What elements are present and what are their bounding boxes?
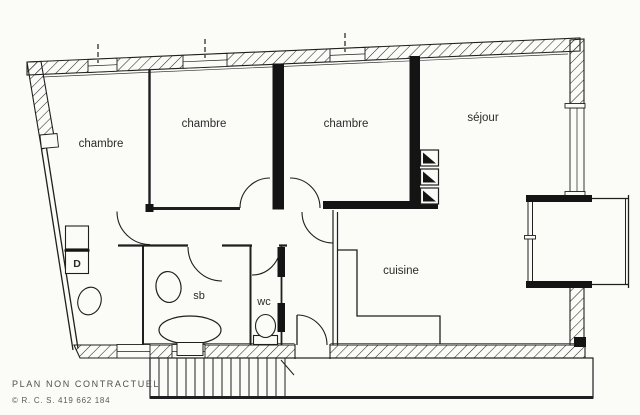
terrace (150, 358, 593, 398)
room-label-chambre-1: chambre (79, 138, 124, 150)
floor-plan-canvas: chambre chambre chambre séjour cuisine s… (0, 0, 640, 415)
room-label-wc: wc (256, 296, 271, 308)
toilet (254, 315, 278, 345)
exterior-wall-right-lower (570, 287, 584, 345)
bathtub (159, 316, 221, 344)
wall-chambre3-sejour (410, 56, 421, 209)
bath-step (177, 343, 203, 356)
footer-disclaimer: PLAN NON CONTRACTUEL (12, 379, 160, 389)
room-label-cuisine: cuisine (383, 265, 419, 277)
heater-module-1 (421, 150, 439, 166)
wall-corridor-cuisine (333, 210, 338, 345)
exterior-staircase (159, 358, 294, 397)
door-arc-wc (252, 247, 280, 275)
footer-rcs: © R. C. S. 419 662 184 (12, 396, 110, 405)
window-top-3 (330, 47, 365, 62)
door-arc-chambre1 (117, 212, 150, 245)
room-label-chambre-3: chambre (324, 118, 369, 130)
door-arc-sb (188, 247, 222, 281)
window-right (565, 104, 585, 197)
entry-door (297, 315, 327, 345)
entry-opening (295, 343, 331, 360)
floor-plan-page: chambre chambre chambre séjour cuisine s… (0, 0, 640, 415)
balcony-window-tick (525, 236, 536, 240)
door-arc-entry (297, 315, 327, 345)
closet-label-d: D (73, 258, 81, 270)
washbasin (154, 270, 183, 304)
wall-block-corridor-1 (278, 247, 286, 277)
wall-chambre2-chambre3 (273, 64, 285, 210)
closet-upper-box (66, 226, 89, 249)
exterior-wall-right-upper (570, 39, 584, 108)
room-label-sejour: séjour (467, 112, 498, 124)
balcony-wall-bottom (526, 281, 592, 288)
door-arc-cuisine (302, 212, 333, 243)
heater-module-2 (421, 169, 439, 185)
door-arc-chambre2 (240, 178, 270, 208)
wall-jog (40, 134, 59, 149)
oval-furniture (74, 284, 105, 318)
heater-stack (421, 150, 439, 204)
window-top-1 (88, 58, 117, 72)
window-bottom-1 (117, 345, 150, 359)
balcony-floor (526, 195, 629, 288)
heater-module-3 (421, 188, 439, 204)
corner-block (574, 337, 586, 347)
balcony-wall-top (526, 195, 592, 202)
toilet-bowl (256, 315, 276, 338)
exterior-walls (27, 33, 586, 360)
stair-direction-mark (281, 360, 294, 375)
bathroom-fixtures (154, 270, 278, 356)
wall-cap (146, 204, 154, 212)
door-arc-chambre3 (290, 178, 320, 208)
room-label-sb: sb (193, 290, 205, 302)
balcony-box (525, 195, 630, 288)
room-label-chambre-2: chambre (182, 118, 227, 130)
wall-block-corridor-2 (278, 303, 286, 332)
